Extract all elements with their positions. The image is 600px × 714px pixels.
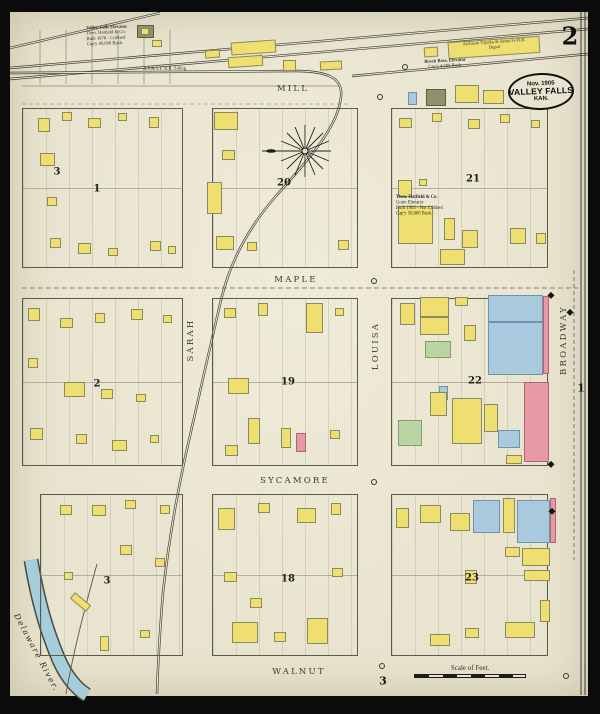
building-footprint — [150, 241, 161, 251]
building-footprint — [517, 500, 550, 543]
block-number: 22 — [468, 376, 482, 387]
building-footprint — [225, 445, 238, 456]
building-footprint — [524, 570, 550, 581]
building-footprint — [488, 295, 543, 322]
building-footprint — [149, 117, 159, 128]
valley-falls-elevator-note: Valley Falls ElevatorTheo. Hatfield & Co… — [86, 22, 163, 62]
stamp-state: KAN. — [534, 96, 549, 103]
building-footprint — [205, 49, 221, 58]
building-footprint — [207, 182, 222, 214]
building-footprint — [424, 47, 439, 58]
building-footprint — [131, 309, 143, 320]
rr-siding-label-text: A.T.& S.F. R.R. Siding — [143, 64, 233, 71]
building-footprint — [296, 433, 306, 452]
building-footprint — [247, 242, 257, 251]
block-number: 3 — [104, 576, 111, 587]
adjacent-sheet-number: 3 — [379, 675, 387, 688]
building-footprint — [60, 318, 73, 328]
building-footprint — [540, 600, 550, 622]
building-footprint — [503, 498, 515, 533]
street-label-sarah: SARAH — [186, 319, 196, 362]
building-footprint — [140, 630, 150, 638]
building-footprint — [120, 545, 132, 555]
building-footprint — [78, 243, 91, 254]
building-footprint — [455, 85, 479, 103]
utility-symbol — [371, 278, 377, 284]
building-footprint — [47, 197, 57, 206]
scale-bar — [414, 674, 526, 678]
adjacent-sheet-number: 1 — [577, 382, 585, 395]
building-footprint — [398, 420, 422, 446]
building-footprint — [550, 498, 556, 543]
block-number: 3 — [54, 167, 61, 178]
building-footprint — [228, 378, 249, 394]
sanborn-map-page: MILLMAPLESYCAMOREWALNUTSARAHLOUISABROADW… — [0, 0, 600, 714]
building-footprint — [224, 308, 236, 318]
building-footprint — [306, 303, 323, 333]
building-footprint — [399, 118, 412, 128]
building-footprint — [440, 249, 465, 265]
building-footprint — [224, 572, 237, 582]
building-footprint — [28, 308, 40, 321]
building-footprint — [218, 508, 235, 530]
building-footprint — [464, 325, 476, 341]
building-footprint — [136, 394, 146, 402]
building-footprint — [450, 513, 470, 531]
building-footprint — [465, 628, 479, 638]
building-footprint — [331, 503, 341, 515]
building-footprint — [396, 508, 409, 528]
building-footprint — [400, 303, 415, 325]
block-number: 1 — [94, 184, 101, 195]
building-footprint — [330, 430, 340, 439]
building-footprint — [531, 120, 540, 128]
building-footprint — [76, 434, 87, 444]
building-footprint — [108, 248, 118, 256]
city-block — [40, 494, 183, 656]
building-footprint — [92, 505, 106, 516]
building-footprint — [95, 313, 105, 323]
building-footprint — [425, 341, 451, 358]
building-footprint — [498, 430, 520, 448]
building-footprint — [522, 548, 550, 566]
street-label-broadway: BROADWAY — [559, 305, 569, 375]
building-footprint — [506, 455, 522, 464]
building-footprint — [62, 112, 72, 121]
utility-symbol — [563, 673, 569, 679]
building-footprint — [420, 505, 441, 523]
building-footprint — [505, 547, 520, 557]
depot-label-text: Atchison Topeka & Santa Fe R.R.Depot — [452, 36, 537, 53]
street-label-louisa: LOUISA — [371, 322, 381, 370]
building-footprint — [484, 404, 498, 432]
building-footprint — [40, 153, 55, 166]
building-footprint — [101, 389, 113, 399]
building-footprint — [543, 296, 549, 374]
building-footprint — [524, 382, 549, 462]
building-footprint — [426, 89, 446, 106]
building-footprint — [420, 297, 449, 317]
building-footprint — [510, 228, 526, 244]
building-footprint — [250, 598, 262, 608]
building-footprint — [332, 568, 343, 577]
building-footprint — [258, 303, 268, 316]
building-footprint — [455, 297, 468, 306]
building-footprint — [30, 428, 43, 440]
building-footprint — [100, 636, 109, 651]
building-footprint — [38, 118, 50, 132]
building-footprint — [163, 315, 172, 323]
building-footprint — [150, 435, 159, 443]
hatfield-grain-elevator-note: Theo. Hatfield & Co.Grain ElevatorBuilt … — [396, 194, 480, 232]
building-footprint — [216, 236, 234, 250]
building-footprint — [64, 382, 85, 397]
building-footprint — [430, 392, 447, 416]
building-footprint — [232, 622, 258, 643]
building-footprint — [214, 112, 238, 130]
scale-of-feet: Scale of Feet. — [414, 664, 526, 678]
utility-symbol — [379, 663, 385, 669]
depot-label: Atchison Topeka & Santa Fe R.R.Depot — [452, 36, 537, 61]
building-footprint — [274, 632, 286, 642]
building-footprint — [419, 179, 427, 186]
block-number: 2 — [94, 379, 101, 390]
building-footprint — [60, 505, 72, 515]
building-footprint — [112, 440, 127, 451]
valley-falls-elevator-note-text: Valley Falls ElevatorTheo. Hatfield & Co… — [86, 22, 163, 47]
building-footprint — [88, 118, 101, 128]
building-footprint — [432, 113, 442, 122]
building-footprint — [505, 622, 535, 638]
building-footprint — [297, 508, 316, 523]
page-number: 2 — [562, 22, 579, 51]
block-number: 18 — [281, 574, 295, 585]
building-footprint — [50, 238, 61, 248]
building-footprint — [483, 90, 504, 104]
block-number: 20 — [277, 178, 291, 189]
building-footprint — [248, 418, 260, 444]
building-footprint — [468, 119, 480, 129]
building-footprint — [231, 39, 277, 55]
building-footprint — [155, 558, 165, 567]
utility-symbol — [371, 479, 377, 485]
building-footprint — [281, 428, 291, 448]
building-footprint — [335, 308, 344, 316]
building-footprint — [168, 246, 176, 254]
building-footprint — [307, 618, 328, 644]
building-footprint — [488, 322, 543, 375]
street-label-maple: MAPLE — [274, 275, 317, 285]
building-footprint — [258, 503, 270, 513]
building-footprint — [500, 114, 510, 123]
building-footprint — [452, 398, 482, 444]
street-label-walnut: WALNUT — [272, 667, 326, 677]
building-footprint — [28, 358, 38, 368]
building-footprint — [320, 60, 342, 70]
building-footprint — [536, 233, 546, 244]
street-label-sycamore: SYCAMORE — [260, 476, 330, 486]
block-number: 19 — [281, 377, 295, 388]
building-footprint — [462, 230, 478, 248]
building-footprint — [125, 500, 136, 509]
block-number: 23 — [465, 573, 479, 584]
building-footprint — [430, 634, 450, 646]
building-footprint — [160, 505, 170, 514]
scale-label: Scale of Feet. — [414, 664, 526, 672]
rr-siding-label: A.T.& S.F. R.R. Siding — [143, 64, 233, 75]
building-footprint — [338, 240, 349, 250]
map-content-layer: MILLMAPLESYCAMOREWALNUTSARAHLOUISABROADW… — [0, 0, 600, 714]
corner-marker — [548, 461, 554, 467]
building-footprint — [283, 60, 296, 71]
building-footprint — [222, 150, 235, 160]
building-footprint — [118, 113, 127, 121]
building-footprint — [408, 92, 417, 105]
building-footprint — [473, 500, 500, 533]
street-label-mill: MILL — [277, 84, 309, 94]
block-number: 21 — [466, 174, 480, 185]
utility-symbol — [377, 94, 383, 100]
building-footprint — [420, 317, 449, 335]
hatfield-grain-elevator-note-text: Theo. Hatfield & Co.Grain ElevatorBuilt … — [396, 194, 480, 216]
building-footprint — [64, 572, 73, 580]
